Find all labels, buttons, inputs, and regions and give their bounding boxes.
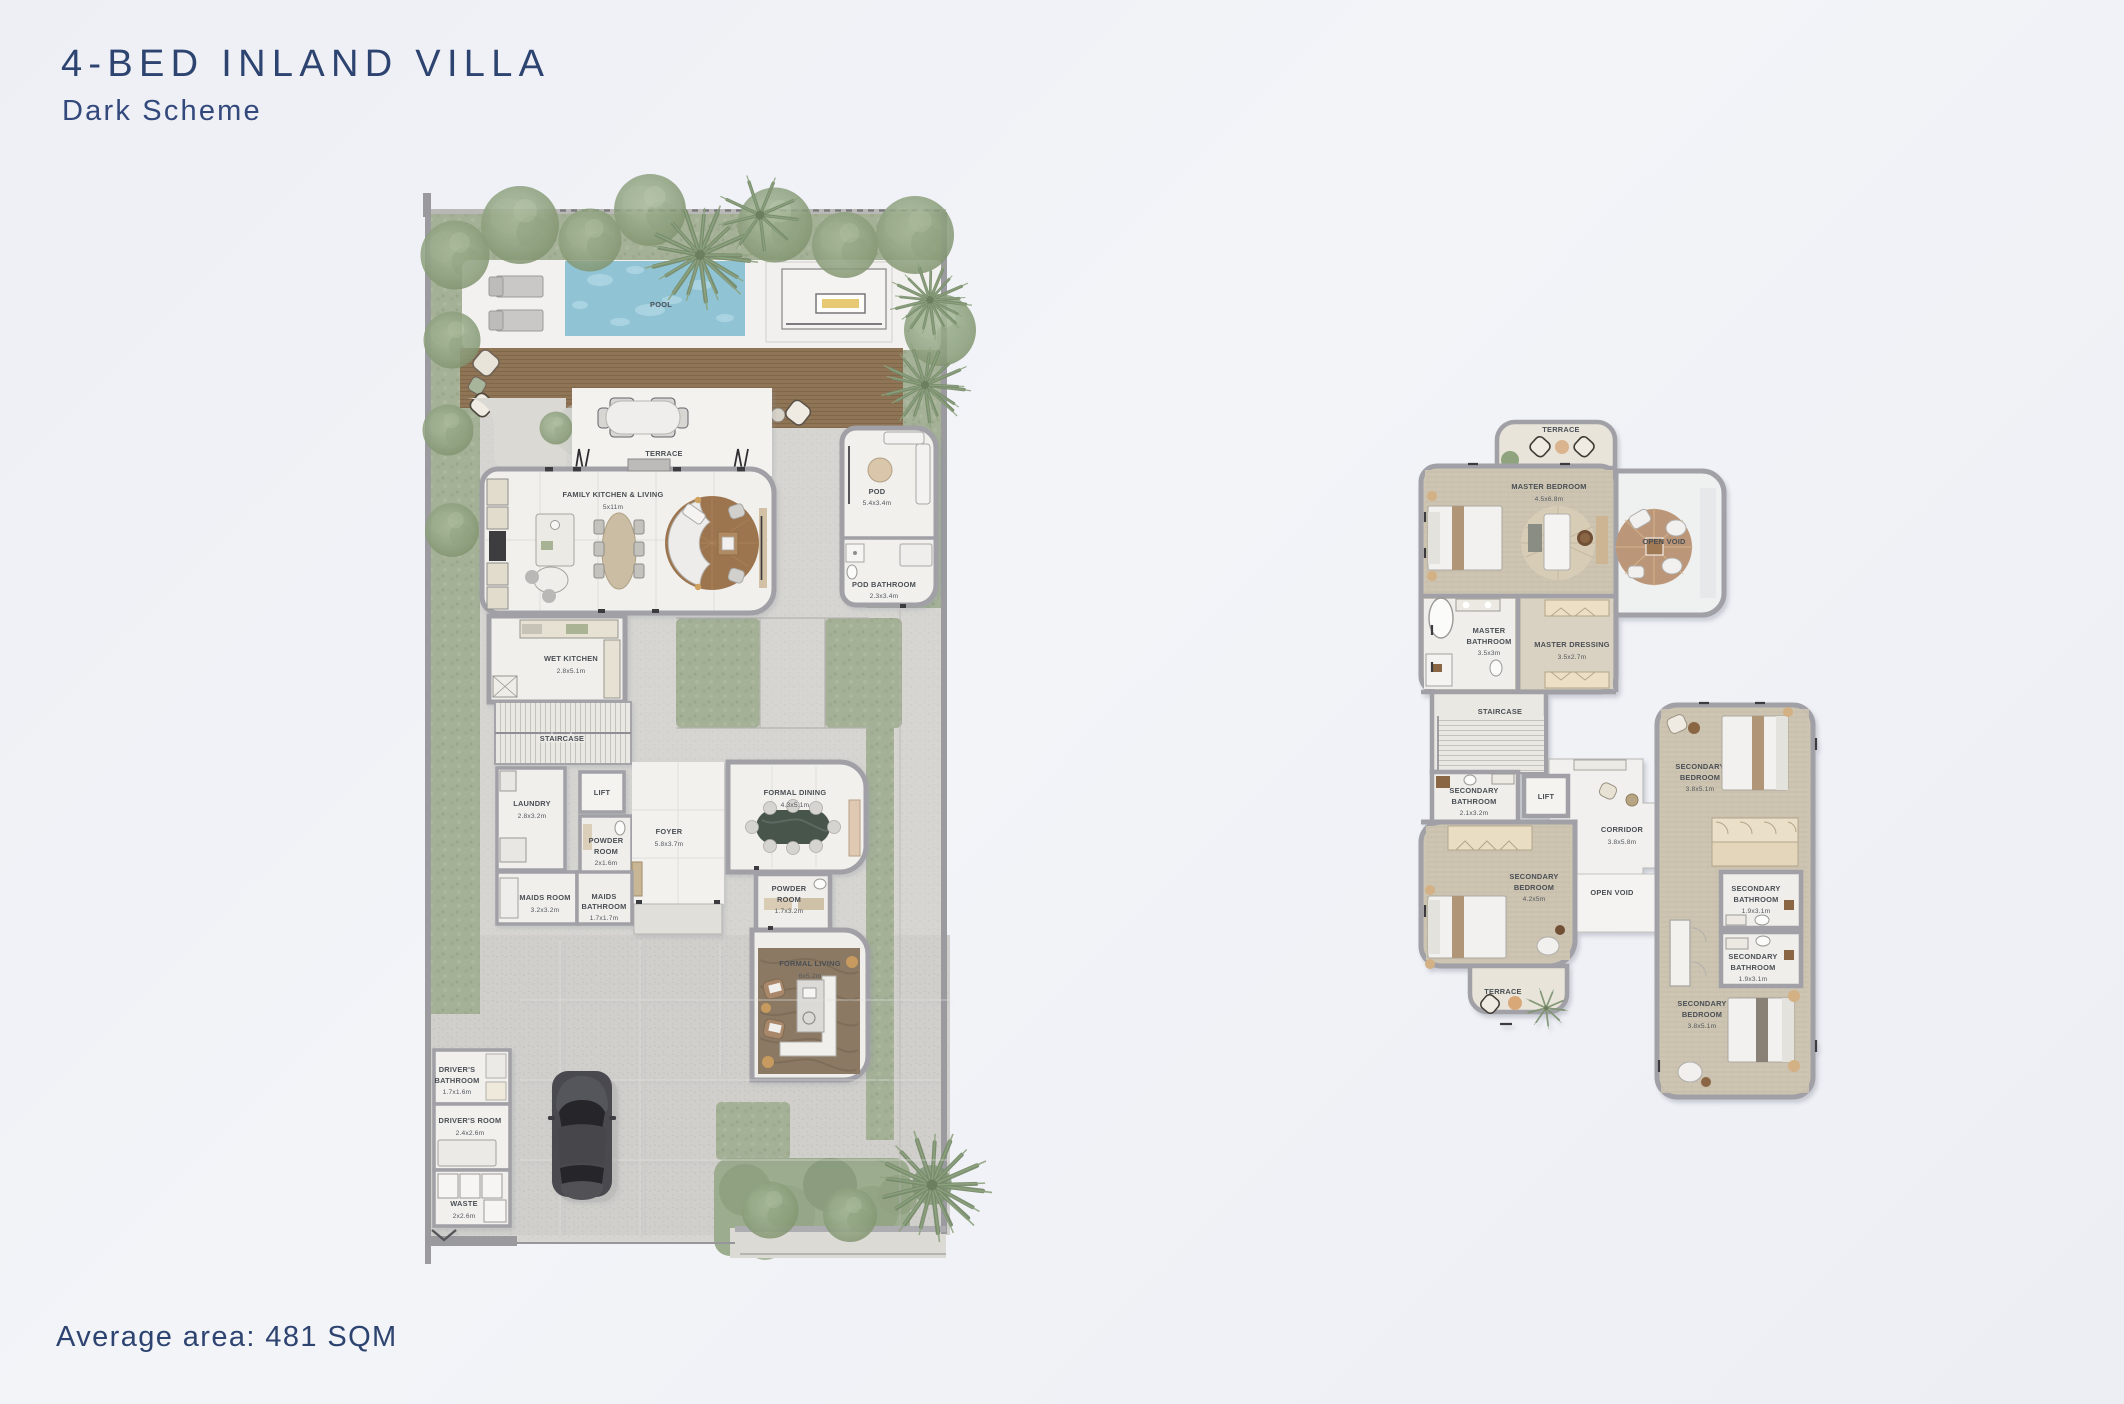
svg-text:MASTER BEDROOM: MASTER BEDROOM — [1511, 482, 1586, 491]
svg-text:1.7x1.7m: 1.7x1.7m — [590, 915, 619, 922]
svg-text:5x11m: 5x11m — [603, 504, 624, 511]
svg-text:1.9x3.1m: 1.9x3.1m — [1742, 908, 1771, 915]
svg-text:OPEN VOID: OPEN VOID — [1642, 537, 1686, 546]
svg-text:SECONDARY: SECONDARY — [1677, 999, 1726, 1008]
svg-text:BATHROOM: BATHROOM — [1734, 895, 1779, 904]
svg-text:MAIDS ROOM: MAIDS ROOM — [519, 893, 570, 902]
svg-text:4.3x5.1m: 4.3x5.1m — [781, 802, 810, 809]
svg-text:3.5x3m: 3.5x3m — [1478, 650, 1501, 657]
svg-text:STAIRCASE: STAIRCASE — [1478, 707, 1522, 716]
svg-text:1.7x1.6m: 1.7x1.6m — [443, 1089, 472, 1096]
svg-text:STAIRCASE: STAIRCASE — [540, 734, 584, 743]
svg-text:2.3x3.4m: 2.3x3.4m — [870, 593, 899, 600]
svg-text:SECONDARY: SECONDARY — [1731, 884, 1780, 893]
svg-text:3.8x5.1m: 3.8x5.1m — [1688, 1023, 1717, 1030]
svg-text:Dark Scheme: Dark Scheme — [62, 95, 262, 127]
svg-text:ROOM: ROOM — [594, 847, 618, 856]
svg-text:FORMAL LIVING: FORMAL LIVING — [779, 959, 840, 968]
svg-text:MAIDS: MAIDS — [591, 892, 616, 901]
svg-text:TERRACE: TERRACE — [645, 449, 682, 458]
svg-text:2x1.6m: 2x1.6m — [595, 860, 618, 867]
svg-text:CORRIDOR: CORRIDOR — [1601, 825, 1644, 834]
svg-text:BATHROOM: BATHROOM — [582, 902, 627, 911]
svg-text:LAUNDRY: LAUNDRY — [513, 799, 551, 808]
svg-text:OPEN VOID: OPEN VOID — [1590, 888, 1634, 897]
svg-text:POOL: POOL — [650, 300, 672, 309]
svg-text:3.5x2.7m: 3.5x2.7m — [1558, 654, 1587, 661]
svg-text:MASTER: MASTER — [1473, 626, 1506, 635]
svg-text:BEDROOM: BEDROOM — [1682, 1010, 1722, 1019]
svg-text:ROOM: ROOM — [777, 895, 801, 904]
svg-text:4.5x6.8m: 4.5x6.8m — [1535, 496, 1564, 503]
svg-text:FORMAL DINING: FORMAL DINING — [764, 788, 827, 797]
svg-text:3.8x5.1m: 3.8x5.1m — [1686, 786, 1715, 793]
svg-text:5.8x3.7m: 5.8x3.7m — [655, 841, 684, 848]
svg-text:POD: POD — [869, 487, 886, 496]
svg-text:TERRACE: TERRACE — [1542, 425, 1579, 434]
svg-text:POWDER: POWDER — [772, 884, 807, 893]
svg-text:BATHROOM: BATHROOM — [435, 1076, 480, 1085]
svg-text:FAMILY KITCHEN & LIVING: FAMILY KITCHEN & LIVING — [562, 490, 663, 499]
svg-text:BEDROOM: BEDROOM — [1514, 883, 1554, 892]
svg-text:2x2.6m: 2x2.6m — [453, 1213, 476, 1220]
svg-text:BATHROOM: BATHROOM — [1467, 637, 1512, 646]
svg-text:BEDROOM: BEDROOM — [1680, 773, 1720, 782]
svg-text:POWDER: POWDER — [589, 836, 624, 845]
svg-text:1.9x3.1m: 1.9x3.1m — [1739, 976, 1768, 983]
svg-text:FOYER: FOYER — [656, 827, 683, 836]
svg-text:3.2x3.2m: 3.2x3.2m — [531, 907, 560, 914]
svg-text:2.8x3.2m: 2.8x3.2m — [518, 813, 547, 820]
svg-text:BATHROOM: BATHROOM — [1452, 797, 1497, 806]
svg-text:SECONDARY: SECONDARY — [1675, 762, 1724, 771]
svg-text:1.7x3.2m: 1.7x3.2m — [775, 908, 804, 915]
svg-text:3.8x5.8m: 3.8x5.8m — [1608, 839, 1637, 846]
svg-text:LIFT: LIFT — [594, 788, 611, 797]
svg-text:SECONDARY: SECONDARY — [1449, 786, 1498, 795]
svg-text:SECONDARY: SECONDARY — [1728, 952, 1777, 961]
svg-text:DRIVER'S ROOM: DRIVER'S ROOM — [439, 1116, 502, 1125]
svg-text:POD BATHROOM: POD BATHROOM — [852, 580, 916, 589]
svg-text:2.8x5.1m: 2.8x5.1m — [557, 668, 586, 675]
svg-text:5.4x3.4m: 5.4x3.4m — [863, 500, 892, 507]
svg-text:4-BED INLAND VILLA: 4-BED INLAND VILLA — [61, 43, 550, 85]
svg-text:4.2x5m: 4.2x5m — [1523, 896, 1546, 903]
svg-text:LIFT: LIFT — [1538, 792, 1555, 801]
svg-text:MASTER DRESSING: MASTER DRESSING — [1534, 640, 1610, 649]
svg-text:BATHROOM: BATHROOM — [1731, 963, 1776, 972]
svg-text:6x5.2m: 6x5.2m — [799, 973, 822, 980]
svg-text:2.4x2.6m: 2.4x2.6m — [456, 1130, 485, 1137]
svg-text:DRIVER'S: DRIVER'S — [439, 1065, 476, 1074]
svg-text:WASTE: WASTE — [450, 1199, 478, 1208]
svg-text:2.1x3.2m: 2.1x3.2m — [1460, 810, 1489, 817]
svg-text:Average area: 481 SQM: Average area: 481 SQM — [56, 1321, 398, 1353]
svg-text:SECONDARY: SECONDARY — [1509, 872, 1558, 881]
svg-text:WET KITCHEN: WET KITCHEN — [544, 654, 598, 663]
